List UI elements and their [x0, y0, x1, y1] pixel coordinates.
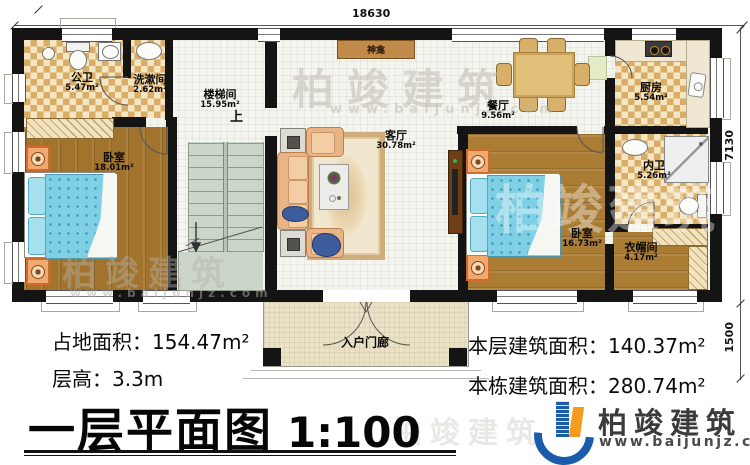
watermark-url: www.baijunjz.com — [70, 286, 273, 300]
room-label-kitchen: 厨房 5.54m² — [634, 82, 668, 102]
title-underline — [24, 450, 456, 453]
room-label-bedroom-left: 卧室 18.01m² — [94, 152, 133, 172]
room-label-washroom: 洗漱间 2.62m² — [133, 74, 167, 94]
room-label-inner-bath: 内卫 5.26m² — [637, 160, 671, 180]
brand-logo-icon — [534, 397, 592, 457]
stat-floor-height: 层高：3.3m — [52, 363, 163, 392]
room-label-bedroom-right: 卧室 16.73m² — [562, 228, 601, 248]
brand-url: www.baijunjz.com — [599, 434, 750, 450]
stat-land-area: 占地面积：154.47m² — [52, 326, 249, 355]
watermark-url: www.baijunjz.com — [330, 102, 559, 117]
room-label-public-bath: 公卫 5.47m² — [65, 72, 99, 92]
room-label-living: 客厅 30.78m² — [376, 130, 415, 150]
stat-building-area: 本栋建筑面积：280.74m² — [468, 370, 705, 399]
room-label-stairwell: 楼梯间 15.95m² — [200, 89, 239, 109]
room-label-cloakroom: 衣帽间 4.17m² — [624, 242, 658, 262]
floor-plan-page: 18630 7130 1500 — [0, 0, 750, 465]
room-label-dining: 餐厅 9.56m² — [481, 100, 515, 120]
stat-floor-area: 本层建筑面积：140.37m² — [468, 330, 705, 359]
title-underline — [24, 455, 456, 456]
room-label-porch: 入户门廊 — [341, 337, 389, 350]
watermark-text: 柏竣建筑 — [495, 168, 719, 243]
